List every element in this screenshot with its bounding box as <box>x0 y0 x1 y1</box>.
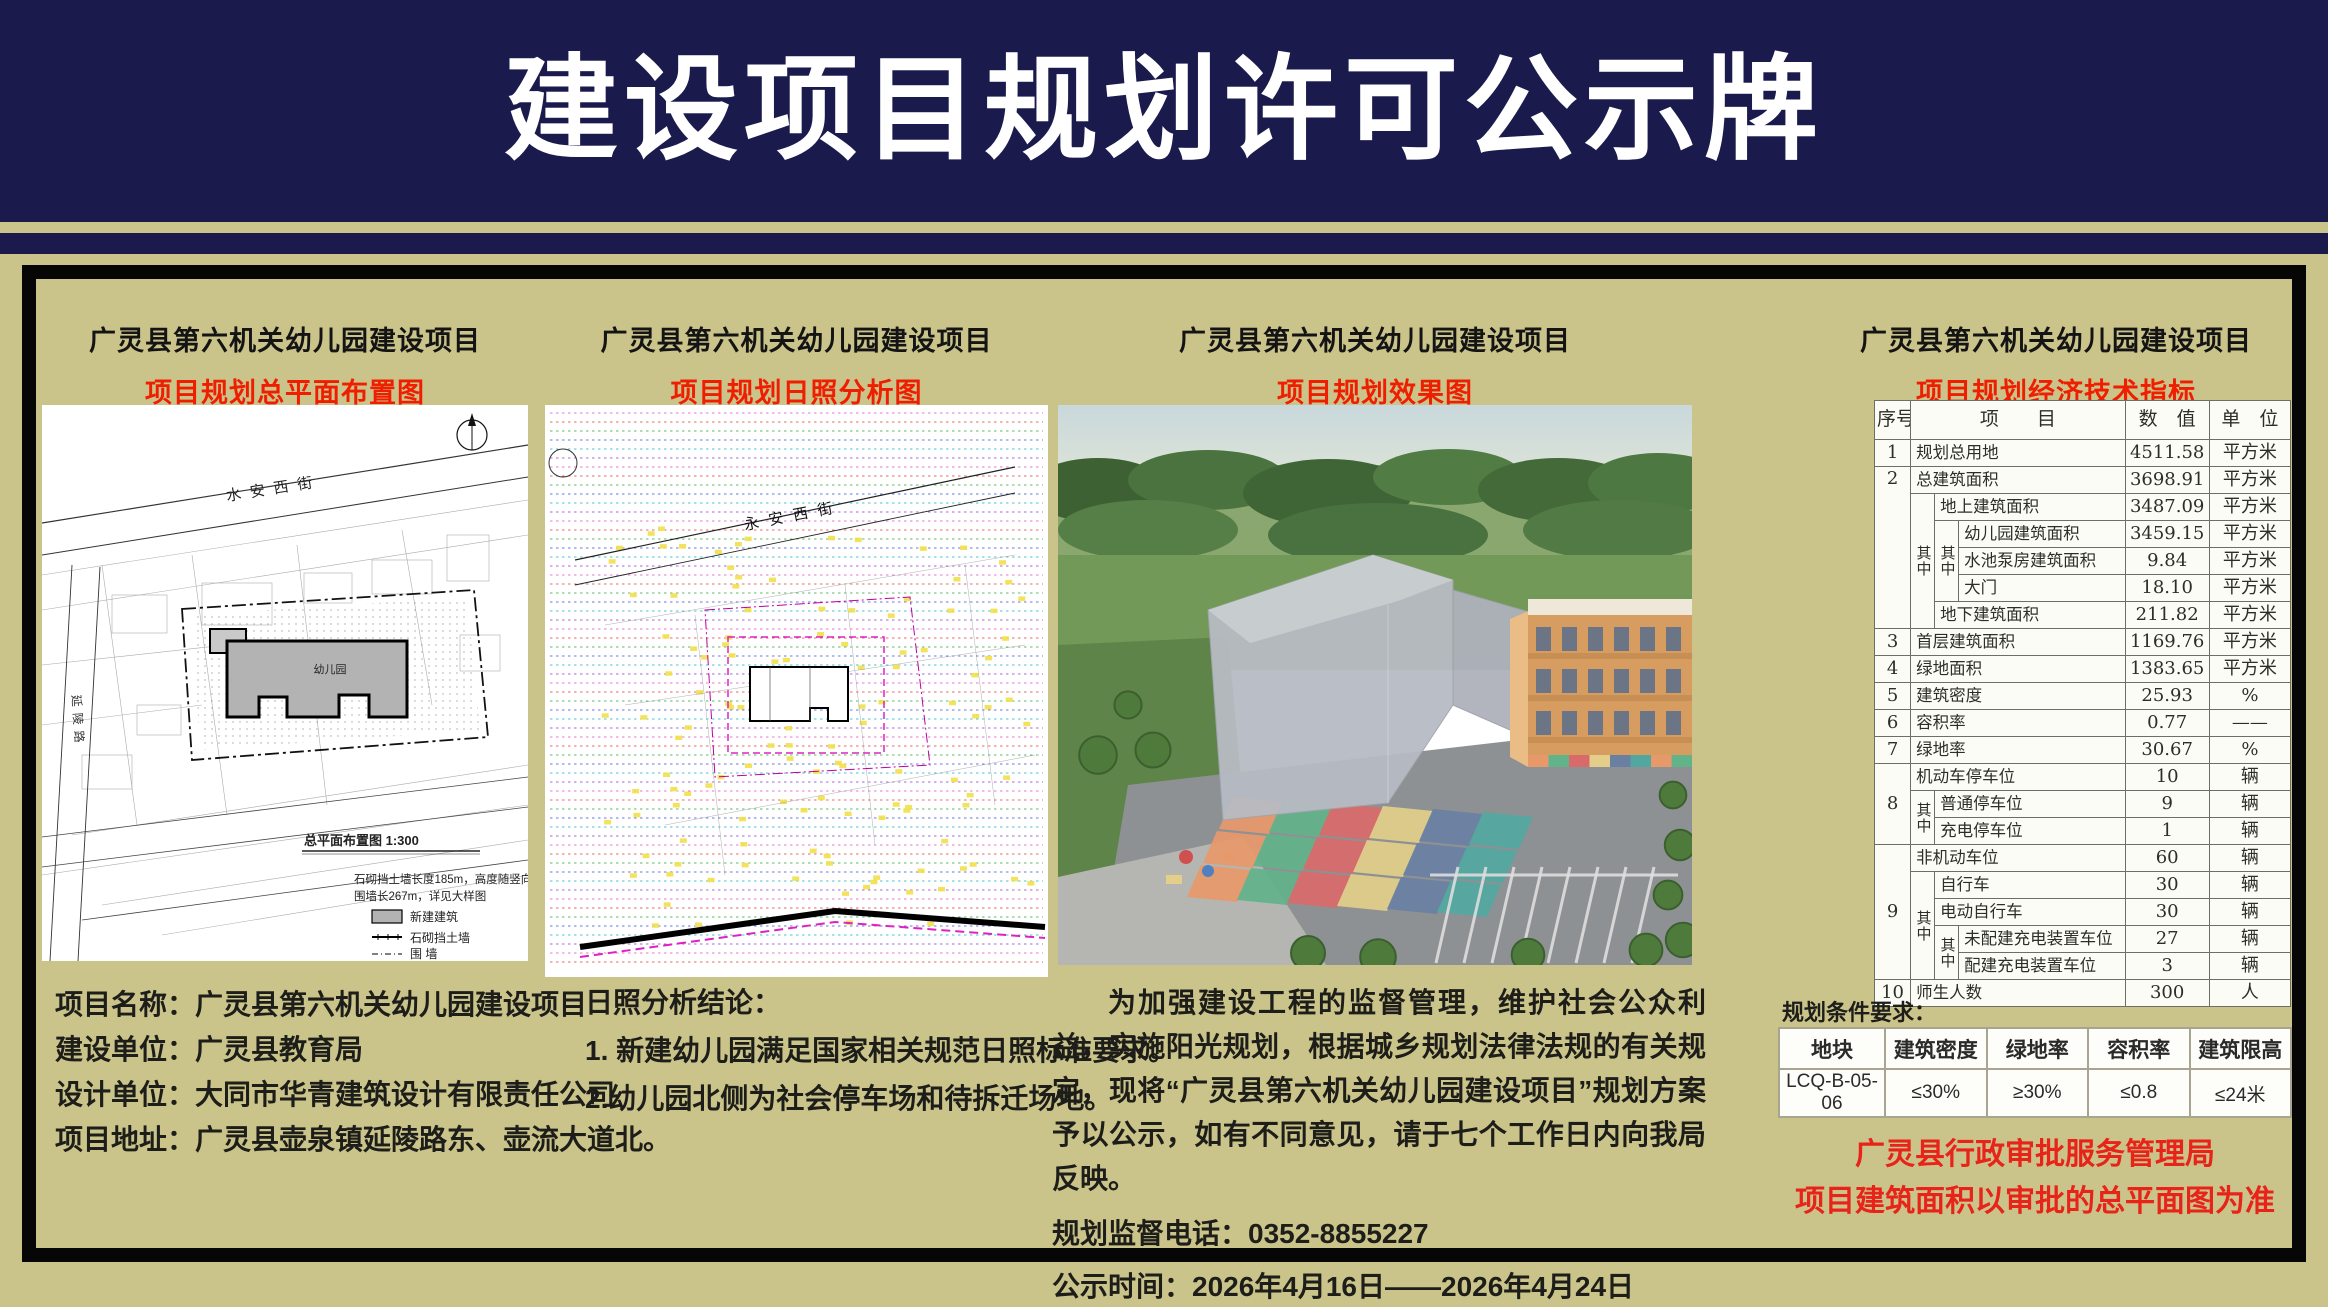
indicator-cell: 辆 <box>2209 818 2290 845</box>
conditions-cell: LCQ-B-05-06 <box>1779 1069 1885 1117</box>
indicator-cell: 211.82 <box>2125 602 2209 629</box>
indicator-cell: 3487.09 <box>2125 494 2209 521</box>
indicator-cell: 大门 <box>1959 575 2125 602</box>
indicator-cell: 9 <box>1875 845 1911 980</box>
indicator-row: 其中地上建筑面积3487.09平方米 <box>1875 494 2291 521</box>
indicator-cell: 辆 <box>2209 791 2290 818</box>
panel-project-title: 广灵县第六机关幼儿园建设项目 <box>545 319 1048 358</box>
indicator-cell: 辆 <box>2209 926 2290 953</box>
planning-conditions-table: 地块 建筑密度 绿地率 容积率 建筑限高 LCQ-B-05-06 ≤30% ≥3… <box>1778 1027 2292 1118</box>
indicator-cell: 3698.91 <box>2125 467 2209 494</box>
indicator-cell: 充电停车位 <box>1935 818 2125 845</box>
indicators-header-cell: 数 值 <box>2125 401 2209 440</box>
authority-signature: 广灵县行政审批服务管理局 项目建筑面积以审批的总平面图为准 <box>1738 1131 2328 1225</box>
indicator-cell: 容积率 <box>1911 710 2126 737</box>
indicator-cell: 辆 <box>2209 899 2290 926</box>
indicator-cell: 绿地面积 <box>1911 656 2126 683</box>
indicator-cell: 师生人数 <box>1911 980 2126 1007</box>
indicator-cell: 3 <box>1875 629 1911 656</box>
indicator-cell: 300 <box>2125 980 2209 1007</box>
conditions-header-row: 地块 建筑密度 绿地率 容积率 建筑限高 <box>1779 1028 2291 1069</box>
design-unit-line: 设计单位：大同市华青建筑设计有限责任公司 <box>55 1072 671 1117</box>
indicator-cell: 平方米 <box>2209 467 2290 494</box>
indicator-cell: 未配建充电装置车位 <box>1959 926 2125 953</box>
indicator-row: 7绿地率30.67% <box>1875 737 2291 764</box>
indicator-cell: 平方米 <box>2209 494 2290 521</box>
indicator-row: 2总建筑面积3698.91平方米 <box>1875 467 2291 494</box>
indicator-row: 地下建筑面积211.82平方米 <box>1875 602 2291 629</box>
indicator-cell: 平方米 <box>2209 548 2290 575</box>
tree-line <box>1058 449 1692 567</box>
indicator-row: 4绿地面积1383.65平方米 <box>1875 656 2291 683</box>
indicator-cell: 地上建筑面积 <box>1935 494 2125 521</box>
indicator-cell: 18.10 <box>2125 575 2209 602</box>
indicator-cell: 9.84 <box>2125 548 2209 575</box>
conditions-header-cell: 建筑密度 <box>1885 1028 1987 1069</box>
wall-note-line1: 石砌挡土墙长度185m，高度随竖向标高 <box>354 872 528 886</box>
drawing-title: 总平面布置图 1:300 <box>304 833 419 848</box>
main-frame: 广灵县第六机关幼儿园建设项目 项目规划总平面布置图 广灵县第六机关幼儿园建设项目… <box>22 265 2306 1262</box>
indicator-cell: 配建充电装置车位 <box>1959 953 2125 980</box>
indicator-row: 其中未配建充电装置车位27辆 <box>1875 926 2291 953</box>
indicator-cell: —— <box>2209 710 2290 737</box>
indicator-cell: 平方米 <box>2209 521 2290 548</box>
indicators-table-wrap: 序号项 目数 值单 位1规划总用地4511.58平方米2总建筑面积3698.91… <box>1874 400 2291 986</box>
banner-underline-stripe <box>0 233 2328 254</box>
indicator-row: 9非机动车位60辆 <box>1875 845 2291 872</box>
panel-head-siteplan: 广灵县第六机关幼儿园建设项目 项目规划总平面布置图 <box>42 319 528 410</box>
indicator-row: 其中普通停车位9辆 <box>1875 791 2291 818</box>
indicator-cell: 规划总用地 <box>1911 440 2126 467</box>
indicator-row: 8机动车停车位10辆 <box>1875 764 2291 791</box>
construction-unit-line: 建设单位：广灵县教育局 <box>55 1027 671 1072</box>
indicator-cell: 9 <box>2125 791 2209 818</box>
indicator-cell: 总建筑面积 <box>1911 467 2126 494</box>
authority-disclaimer: 项目建筑面积以审批的总平面图为准 <box>1738 1178 2328 1225</box>
indicator-cell: 27 <box>2125 926 2209 953</box>
panel-head-rendering: 广灵县第六机关幼儿园建设项目 项目规划效果图 <box>1058 319 1692 410</box>
indicators-header-cell: 单 位 <box>2209 401 2290 440</box>
indicator-cell: 非机动车位 <box>1911 845 2126 872</box>
project-name-line: 项目名称：广灵县第六机关幼儿园建设项目 <box>55 982 671 1027</box>
indicator-cell: 1 <box>2125 818 2209 845</box>
indicator-cell: 辆 <box>2209 764 2290 791</box>
indicator-cell: 5 <box>1875 683 1911 710</box>
indicator-cell: 60 <box>2125 845 2209 872</box>
indicator-cell: 10 <box>2125 764 2209 791</box>
notice-board: { "banner": { "title": "建设项目规划许可公示牌" }, … <box>0 0 2328 1280</box>
indicator-cell: 3 <box>2125 953 2209 980</box>
conditions-cell: ≥30% <box>1987 1069 2089 1117</box>
conditions-header-cell: 地块 <box>1779 1028 1885 1069</box>
indicator-cell: 1383.65 <box>2125 656 2209 683</box>
indicator-cell: 2 <box>1875 467 1911 629</box>
indicator-row: 1规划总用地4511.58平方米 <box>1875 440 2291 467</box>
indicator-cell: % <box>2209 683 2290 710</box>
indicator-cell: 辆 <box>2209 845 2290 872</box>
new-building-footprint: 幼儿园 <box>210 629 407 717</box>
indicator-cell: 人 <box>2209 980 2290 1007</box>
indicator-row: 5建筑密度25.93% <box>1875 683 2291 710</box>
indicator-cell: 30.67 <box>2125 737 2209 764</box>
indicator-cell: 首层建筑面积 <box>1911 629 2126 656</box>
indicator-cell: 平方米 <box>2209 602 2290 629</box>
siteplan-drawing: 水安西街 延陵路 幼儿园 <box>42 405 528 961</box>
indicator-cell: 其中 <box>1911 494 1935 629</box>
kindergarten-building <box>1510 599 1692 767</box>
public-notice: 为加强建设工程的监督管理，维护社会公众利益，实施阳光规划，根据城乡规划法律法规的… <box>1052 981 1706 1307</box>
building-label: 幼儿园 <box>314 663 347 676</box>
legend-fence: 围 墙 <box>410 947 437 961</box>
indicator-cell: 平方米 <box>2209 629 2290 656</box>
indicator-row: 电动自行车30辆 <box>1875 899 2291 926</box>
indicator-cell: 4 <box>1875 656 1911 683</box>
indicator-cell: 幼儿园建筑面积 <box>1959 521 2125 548</box>
conditions-header-cell: 绿地率 <box>1987 1028 2089 1069</box>
indicator-cell: 辆 <box>2209 872 2290 899</box>
notice-period-line: 公示时间：2026年4月16日——2026年4月24日 <box>1052 1267 1706 1307</box>
indicator-cell: 其中 <box>1911 872 1935 980</box>
indicator-cell: 30 <box>2125 899 2209 926</box>
project-rendering <box>1058 405 1692 965</box>
indicator-cell: 4511.58 <box>2125 440 2209 467</box>
indicators-header-cell: 序号 <box>1875 401 1911 440</box>
panel-head-indicators: 广灵县第六机关幼儿园建设项目 项目规划经济技术指标 <box>1816 319 2296 410</box>
indicator-cell: 自行车 <box>1935 872 2125 899</box>
indicator-cell: 1169.76 <box>2125 629 2209 656</box>
indicator-cell: 平方米 <box>2209 656 2290 683</box>
project-info: 项目名称：广灵县第六机关幼儿园建设项目 建设单位：广灵县教育局 设计单位：大同市… <box>55 982 671 1162</box>
notice-paragraph: 为加强建设工程的监督管理，维护社会公众利益，实施阳光规划，根据城乡规划法律法规的… <box>1052 981 1706 1201</box>
indicator-cell: 建筑密度 <box>1911 683 2126 710</box>
legend-retaining-wall: 石砌挡土墙 <box>410 931 470 945</box>
legend-new-building: 新建建筑 <box>410 909 458 924</box>
panel-head-sunshine: 广灵县第六机关幼儿园建设项目 项目规划日照分析图 <box>545 319 1048 410</box>
sunshine-drawing: 永安西街 <box>545 405 1048 977</box>
indicator-cell: 机动车停车位 <box>1911 764 2126 791</box>
indicator-cell: 25.93 <box>2125 683 2209 710</box>
indicator-row: 10师生人数300人 <box>1875 980 2291 1007</box>
conditions-title: 规划条件要求： <box>1782 995 1936 1027</box>
indicator-cell: 3459.15 <box>2125 521 2209 548</box>
indicator-cell: 水池泵房建筑面积 <box>1959 548 2125 575</box>
authority-name: 广灵县行政审批服务管理局 <box>1738 1131 2328 1178</box>
indicator-row: 3首层建筑面积1169.76平方米 <box>1875 629 2291 656</box>
panel-project-title: 广灵县第六机关幼儿园建设项目 <box>42 319 528 358</box>
indicator-cell: 6 <box>1875 710 1911 737</box>
indicator-cell: 平方米 <box>2209 440 2290 467</box>
indicator-cell: 地下建筑面积 <box>1935 602 2125 629</box>
indicator-cell: 其中 <box>1935 926 1959 980</box>
indicator-cell: 8 <box>1875 764 1911 845</box>
conditions-header-cell: 容积率 <box>2088 1028 2190 1069</box>
conditions-header-cell: 建筑限高 <box>2190 1028 2292 1069</box>
conditions-cell: ≤0.8 <box>2088 1069 2190 1117</box>
indicator-cell: 1 <box>1875 440 1911 467</box>
indicator-cell: % <box>2209 737 2290 764</box>
indicator-row: 6容积率0.77—— <box>1875 710 2291 737</box>
supervision-phone-line: 规划监督电话：0352-8855227 <box>1052 1214 1706 1254</box>
indicator-row: 其中自行车30辆 <box>1875 872 2291 899</box>
wall-note-line2: 围墙长267m，详见大样图 <box>354 889 486 903</box>
conditions-data-row: LCQ-B-05-06 ≤30% ≥30% ≤0.8 ≤24米 <box>1779 1069 2291 1117</box>
indicator-cell: 其中 <box>1911 791 1935 845</box>
indicator-cell: 0.77 <box>2125 710 2209 737</box>
indicator-cell: 30 <box>2125 872 2209 899</box>
indicators-header-row: 序号项 目数 值单 位 <box>1875 401 2291 440</box>
indicator-row: 充电停车位1辆 <box>1875 818 2291 845</box>
conditions-cell: ≤30% <box>1885 1069 1987 1117</box>
indicator-row: 其中幼儿园建筑面积3459.15平方米 <box>1875 521 2291 548</box>
panel-project-title: 广灵县第六机关幼儿园建设项目 <box>1058 319 1692 358</box>
project-address-line: 项目地址：广灵县壶泉镇延陵路东、壶流大道北。 <box>55 1117 671 1162</box>
indicator-cell: 电动自行车 <box>1935 899 2125 926</box>
indicator-cell: 平方米 <box>2209 575 2290 602</box>
board-title: 建设项目规划许可公示牌 <box>0 0 2328 222</box>
indicators-table: 序号项 目数 值单 位1规划总用地4511.58平方米2总建筑面积3698.91… <box>1874 400 2291 1007</box>
indicator-cell: 绿地率 <box>1911 737 2126 764</box>
indicator-cell: 7 <box>1875 737 1911 764</box>
conditions-table-wrap: 地块 建筑密度 绿地率 容积率 建筑限高 LCQ-B-05-06 ≤30% ≥3… <box>1778 1027 2292 1118</box>
panel-project-title: 广灵县第六机关幼儿园建设项目 <box>1816 319 2296 358</box>
indicators-header-cell: 项 目 <box>1911 401 2126 440</box>
indicator-cell: 普通停车位 <box>1935 791 2125 818</box>
title-banner: 建设项目规划许可公示牌 <box>0 0 2328 222</box>
indicator-cell: 其中 <box>1935 521 1959 602</box>
indicator-cell: 辆 <box>2209 953 2290 980</box>
conditions-cell: ≤24米 <box>2190 1069 2292 1117</box>
